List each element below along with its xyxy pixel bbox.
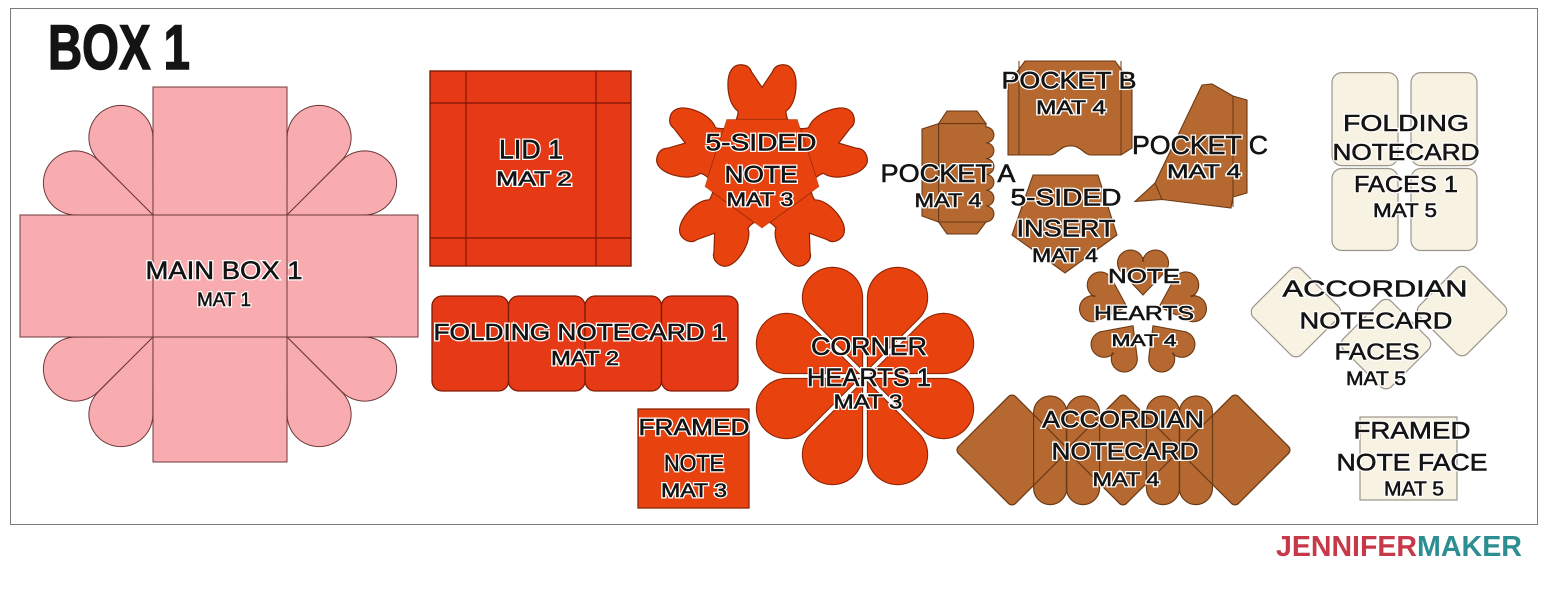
- svg-text:MAT 1: MAT 1: [197, 289, 251, 311]
- svg-text:CORNER: CORNER: [811, 333, 927, 361]
- svg-text:NOTE: NOTE: [1108, 266, 1180, 288]
- svg-text:NOTECARD: NOTECARD: [1052, 439, 1199, 466]
- svg-text:NOTE FACE: NOTE FACE: [1337, 450, 1488, 477]
- svg-text:MAT 3: MAT 3: [834, 390, 903, 413]
- svg-text:5-SIDED: 5-SIDED: [1011, 185, 1122, 212]
- svg-text:FRAMED: FRAMED: [1354, 418, 1471, 445]
- svg-text:MAT 4: MAT 4: [1036, 98, 1107, 119]
- svg-text:5-SIDED: 5-SIDED: [706, 130, 817, 157]
- svg-text:NOTE: NOTE: [664, 450, 724, 476]
- svg-text:MAT 2: MAT 2: [551, 348, 619, 370]
- svg-text:MAT 5: MAT 5: [1346, 369, 1406, 390]
- svg-text:HEARTS: HEARTS: [1094, 303, 1194, 325]
- svg-text:POCKET A: POCKET A: [881, 160, 1016, 188]
- svg-text:FOLDING NOTECARD 1: FOLDING NOTECARD 1: [434, 319, 727, 345]
- svg-text:JENNIFER: JENNIFER: [1276, 531, 1417, 563]
- svg-text:BOX 1: BOX 1: [48, 13, 190, 83]
- svg-text:ACCORDIAN: ACCORDIAN: [1283, 275, 1468, 301]
- svg-text:LID 1: LID 1: [499, 135, 563, 165]
- svg-text:HEARTS 1: HEARTS 1: [807, 364, 931, 392]
- svg-text:POCKET C: POCKET C: [1132, 132, 1268, 160]
- svg-text:FOLDING: FOLDING: [1343, 110, 1469, 136]
- svg-text:MAT 2: MAT 2: [496, 167, 572, 190]
- svg-text:MAT 4: MAT 4: [1093, 469, 1160, 491]
- svg-text:POCKET B: POCKET B: [1002, 68, 1137, 95]
- svg-text:MAT 5: MAT 5: [1373, 201, 1437, 222]
- svg-text:INSERT: INSERT: [1017, 216, 1116, 243]
- svg-text:FRAMED: FRAMED: [639, 414, 750, 440]
- svg-text:MAT 3: MAT 3: [661, 480, 727, 502]
- svg-text:MAKER: MAKER: [1417, 531, 1522, 563]
- svg-text:ACCORDIAN: ACCORDIAN: [1042, 407, 1204, 434]
- svg-text:MAT 4: MAT 4: [1112, 331, 1177, 350]
- svg-text:MAT 5: MAT 5: [1384, 477, 1444, 500]
- svg-text:MAIN BOX 1: MAIN BOX 1: [146, 257, 303, 285]
- svg-text:FACES: FACES: [1335, 338, 1420, 364]
- svg-text:FACES 1: FACES 1: [1354, 171, 1458, 197]
- svg-text:MAT 4: MAT 4: [915, 191, 983, 212]
- svg-text:NOTE: NOTE: [725, 162, 798, 189]
- svg-text:MAT 4: MAT 4: [1032, 245, 1098, 267]
- svg-text:MAT 3: MAT 3: [727, 189, 794, 211]
- svg-text:MAT 4: MAT 4: [1167, 162, 1242, 183]
- svg-text:NOTECARD: NOTECARD: [1333, 139, 1480, 165]
- svg-text:NOTECARD: NOTECARD: [1300, 307, 1453, 333]
